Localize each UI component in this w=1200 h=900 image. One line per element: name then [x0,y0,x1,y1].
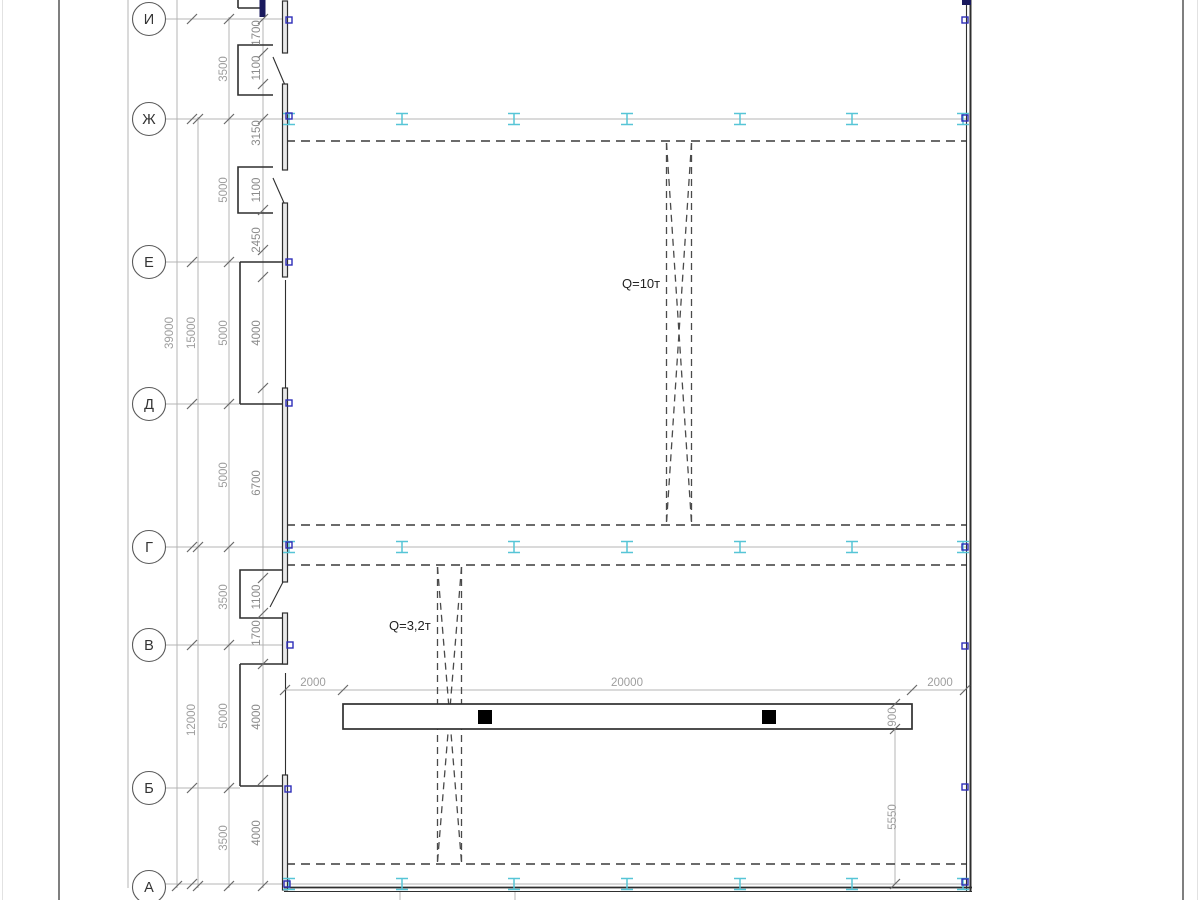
ibeam-column-markers [283,114,969,890]
dim-label: 1100 [251,178,263,203]
axis-bubble-2: Ж [133,103,166,136]
dim-label: 5000 [218,462,230,488]
axis-bubble-4: Д [133,388,166,421]
axis-bubble-6: В [133,629,166,662]
crane-capacity-label: Q=10т [622,276,660,291]
dim-label: 2000 [300,677,326,689]
axis-label: Ж [142,112,156,128]
axis-bubble-5: Г [133,531,166,564]
dim-label: 5000 [218,320,230,346]
dim-label: 3500 [218,584,230,610]
dim-label: 5550 [887,804,899,830]
crane-labels: Q=10т Q=3,2т [389,276,660,633]
axis-bubble-1: И [133,3,166,36]
dim-label: 20000 [611,677,643,689]
axis-label: В [144,638,154,654]
axis-bubble-7: Б [133,772,166,805]
axis-bubble-8: А [133,871,166,900]
crane-runway-dashed-lines [286,141,966,864]
axis-label: Б [144,781,154,797]
dim-label: 15000 [186,317,198,349]
crane-capacity-label: Q=3,2т [389,618,431,633]
dim-label: 2450 [251,227,263,253]
tick-marks [172,14,970,891]
dim-label: 3500 [218,56,230,82]
dim-label: 4000 [251,820,263,846]
dim-label: 1100 [251,56,263,81]
dim-label: 5000 [218,703,230,729]
dim-label: 4000 [251,320,263,346]
axis-label: Г [145,540,153,556]
axis-label: Д [144,397,154,413]
dim-label: 1700 [251,20,263,46]
axis-bubble-3: Е [133,246,166,279]
column-markers-blue [284,17,968,887]
dim-label: 900 [887,707,899,726]
dim-label: 3500 [218,825,230,851]
axis-label: Е [144,255,154,271]
dim-label: 2000 [927,677,953,689]
axis-label: И [144,12,154,28]
right-wall [962,0,971,891]
dim-label: 12000 [186,704,198,736]
crane-1-symbol [667,143,692,523]
axis-circles: И Ж Е Д Г В Б А [133,3,166,900]
cad-drawing-viewport: И Ж Е Д Г В Б А 1700 1100 3150 1100 2450… [0,0,1200,900]
axis-label: А [144,880,154,896]
dim-label: 39000 [164,317,176,349]
dim-label: 1100 [251,585,263,610]
floor-plan-canvas: И Ж Е Д Г В Б А 1700 1100 3150 1100 2450… [0,0,1200,900]
sheet-frame [3,0,1198,900]
dim-label: 1700 [251,620,263,646]
dim-label: 5000 [218,177,230,203]
dim-label: 4000 [251,704,263,730]
monorail-beam [343,704,912,729]
dim-label: 6700 [251,470,263,496]
dim-label: 3150 [251,120,263,146]
